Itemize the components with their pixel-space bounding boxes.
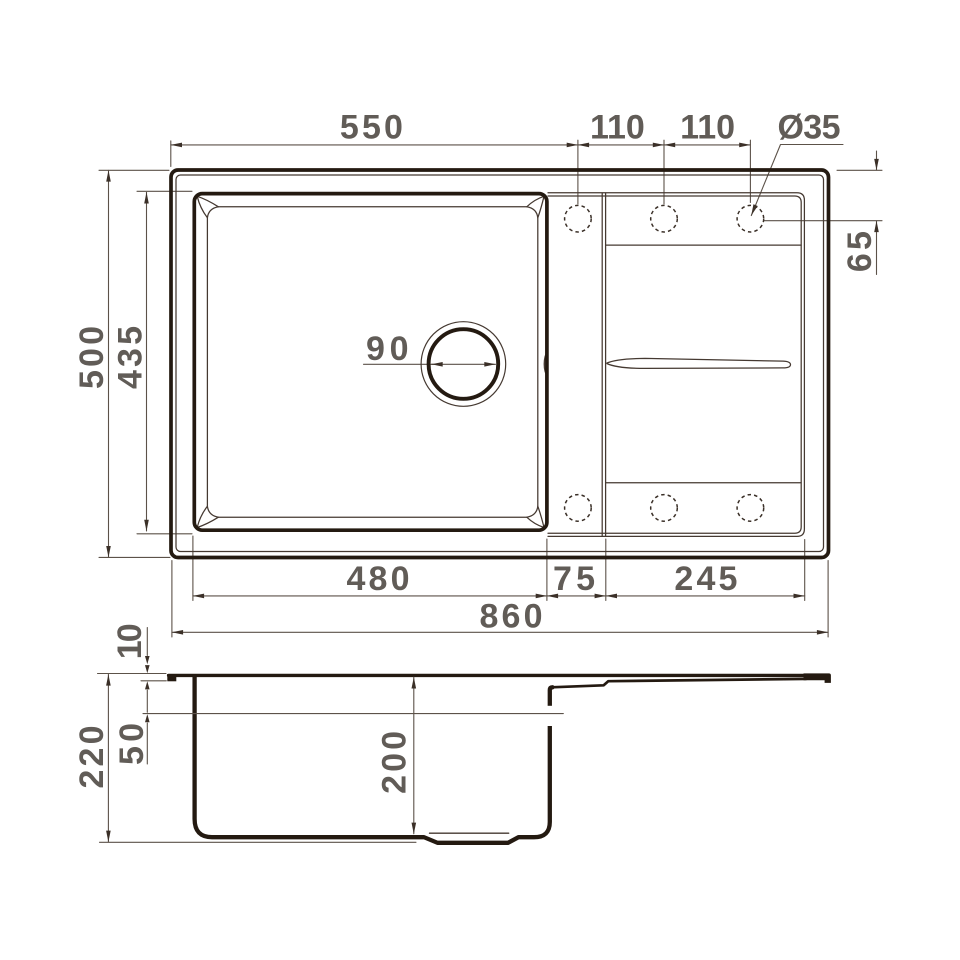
svg-text:200: 200 — [376, 731, 414, 794]
svg-text:860: 860 — [480, 598, 543, 636]
svg-text:110: 110 — [680, 108, 735, 146]
svg-text:50: 50 — [113, 723, 151, 765]
svg-text:110: 110 — [590, 108, 645, 146]
svg-text:65: 65 — [841, 231, 879, 272]
svg-text:220: 220 — [73, 726, 111, 789]
svg-text:245: 245 — [674, 560, 737, 598]
svg-text:550: 550 — [340, 108, 403, 146]
svg-text:75: 75 — [553, 560, 595, 598]
svg-text:500: 500 — [73, 326, 111, 389]
svg-text:10: 10 — [111, 623, 149, 659]
svg-text:Ø35: Ø35 — [778, 109, 841, 147]
svg-text:90: 90 — [366, 330, 409, 368]
svg-text:435: 435 — [112, 326, 150, 389]
svg-text:480: 480 — [347, 560, 410, 598]
